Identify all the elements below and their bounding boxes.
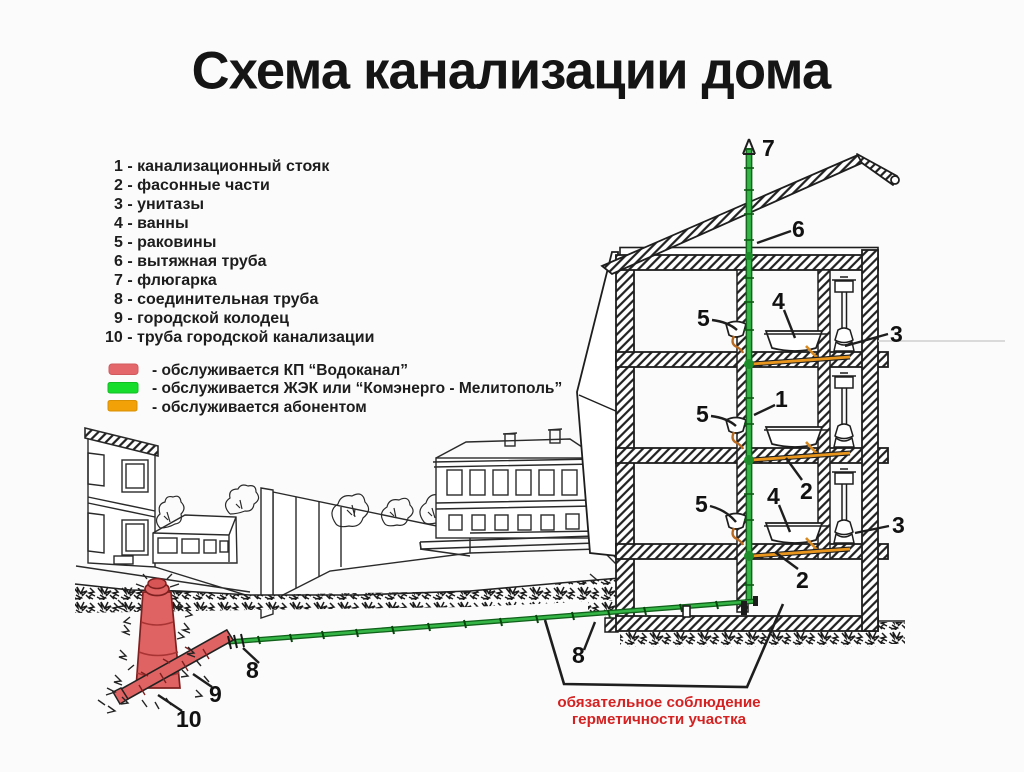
svg-text:обязательное соблюдение: обязательное соблюдение — [557, 694, 760, 711]
svg-text:1 - канализационный стояк: 1 - канализационный стояк — [114, 158, 330, 175]
svg-text:9 - городской колодец: 9 - городской колодец — [114, 310, 289, 327]
svg-text:2: 2 — [800, 478, 813, 504]
svg-text:10: 10 — [176, 706, 202, 732]
svg-text:4 - ванны: 4 - ванны — [114, 215, 189, 232]
svg-text:5 - раковины: 5 - раковины — [114, 234, 216, 251]
svg-text:7 - флюгарка: 7 - флюгарка — [114, 272, 217, 289]
svg-text:10 - труба городской канализац: 10 - труба городской канализации — [105, 329, 374, 346]
svg-text:- обслуживается ЖЭК или “Комэн: - обслуживается ЖЭК или “Комэнерго - Мел… — [152, 380, 562, 397]
svg-text:5: 5 — [695, 491, 708, 517]
svg-text:- обслуживается абонентом: - обслуживается абонентом — [152, 399, 367, 416]
svg-text:герметичности участка: герметичности участка — [572, 711, 747, 728]
svg-text:8: 8 — [246, 657, 259, 683]
svg-text:6: 6 — [792, 216, 805, 242]
svg-text:3 - унитазы: 3 - унитазы — [114, 196, 204, 213]
svg-text:- обслуживается КП “Водоканал”: - обслуживается КП “Водоканал” — [152, 362, 408, 379]
svg-text:4: 4 — [772, 288, 785, 314]
svg-text:4: 4 — [767, 483, 780, 509]
svg-text:5: 5 — [696, 401, 709, 427]
svg-text:2: 2 — [796, 567, 809, 593]
svg-text:3: 3 — [890, 321, 903, 347]
svg-text:1: 1 — [775, 386, 788, 412]
svg-text:9: 9 — [209, 681, 222, 707]
svg-text:8 - соединительная труба: 8 - соединительная труба — [114, 291, 318, 308]
svg-text:2 - фасонные части: 2 - фасонные части — [114, 177, 270, 194]
svg-text:7: 7 — [762, 135, 775, 161]
svg-text:3: 3 — [892, 512, 905, 538]
svg-text:Схема канализации дома: Схема канализации дома — [192, 42, 832, 101]
svg-text:6 - вытяжная труба: 6 - вытяжная труба — [114, 253, 267, 270]
svg-text:8: 8 — [572, 642, 585, 668]
svg-text:5: 5 — [697, 305, 710, 331]
